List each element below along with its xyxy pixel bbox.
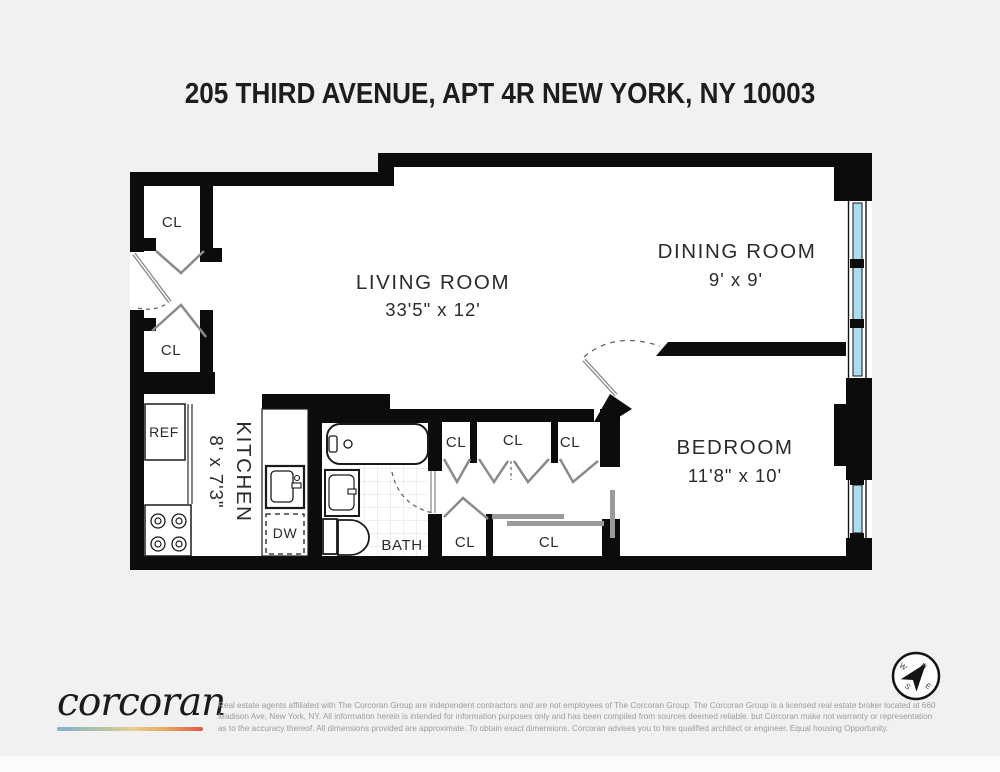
brand-logo: corcoran	[57, 684, 203, 731]
bath-sink	[325, 470, 359, 516]
kitchen-sink	[266, 466, 304, 508]
dishwasher-label: DW	[273, 525, 298, 541]
closet-label: CL	[539, 534, 559, 551]
bedroom-window	[846, 478, 868, 540]
brand-gradient-bar	[57, 727, 203, 731]
disclaimer-line: as to the accuracy thereof. All dimensio…	[218, 723, 993, 734]
legal-disclaimer: Real estate agents affiliated with The C…	[218, 700, 993, 734]
living-room-label: LIVING ROOM	[356, 271, 510, 294]
dining-room-dims: 9' x 9'	[709, 269, 763, 290]
floor-plan-drawing: LIVING ROOM 33'5" x 12' DINING ROOM 9' x…	[0, 0, 1000, 772]
brand-logo-text: corcoran	[57, 684, 203, 722]
stove	[145, 505, 191, 556]
kitchen-label: KITCHEN	[232, 421, 255, 522]
kitchen-dims: 8' x 7'3"	[206, 435, 227, 508]
toilet	[323, 519, 369, 555]
refrigerator-label: REF	[149, 424, 179, 440]
closet-label: CL	[455, 534, 475, 551]
bath-label: BATH	[381, 537, 422, 554]
closet-label: CL	[503, 432, 523, 449]
closet-label: CL	[560, 434, 580, 451]
compass-icon: N E S W	[890, 651, 942, 702]
dining-room-label: DINING ROOM	[658, 240, 817, 263]
dining-window	[846, 201, 868, 378]
bottom-strip	[0, 756, 1000, 772]
living-room-dims: 33'5" x 12'	[385, 299, 481, 320]
windows	[846, 201, 868, 540]
closet-label: CL	[162, 214, 182, 231]
closet-label: CL	[446, 434, 466, 451]
bedroom-dims: 11'8" x 10'	[688, 465, 782, 486]
bathtub	[327, 424, 428, 464]
floorplan-page: 205 THIRD AVENUE, APT 4R NEW YORK, NY 10…	[0, 0, 1000, 772]
closet-label: CL	[161, 342, 181, 359]
disclaimer-line: Real estate agents affiliated with The C…	[218, 700, 993, 711]
bedroom-label: BEDROOM	[676, 436, 793, 459]
disclaimer-line: Madison Ave, New York, NY. All informati…	[218, 711, 993, 722]
